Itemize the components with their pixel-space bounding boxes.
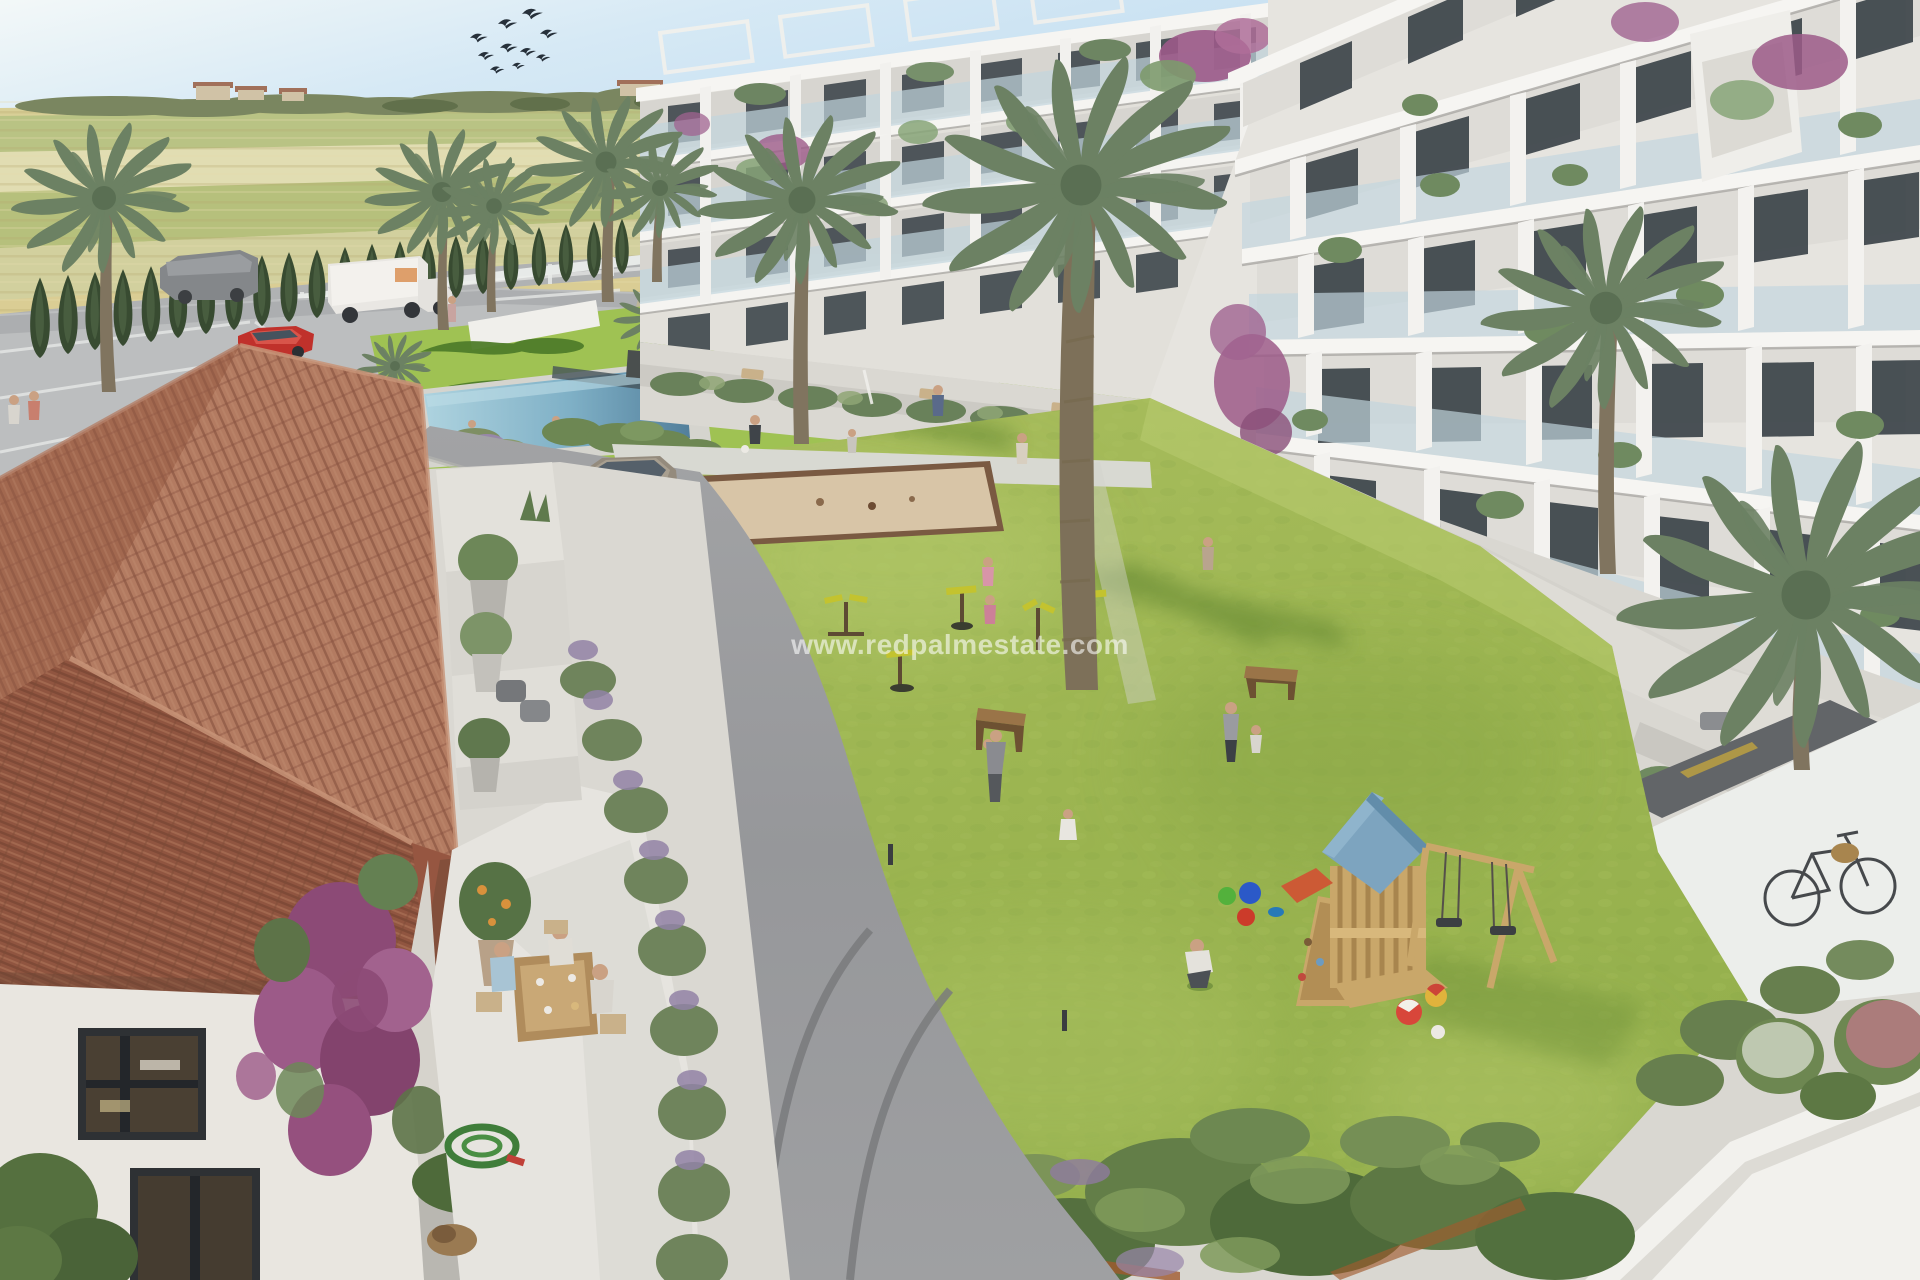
svg-text:www.redpalmestate.com: www.redpalmestate.com (790, 629, 1129, 660)
